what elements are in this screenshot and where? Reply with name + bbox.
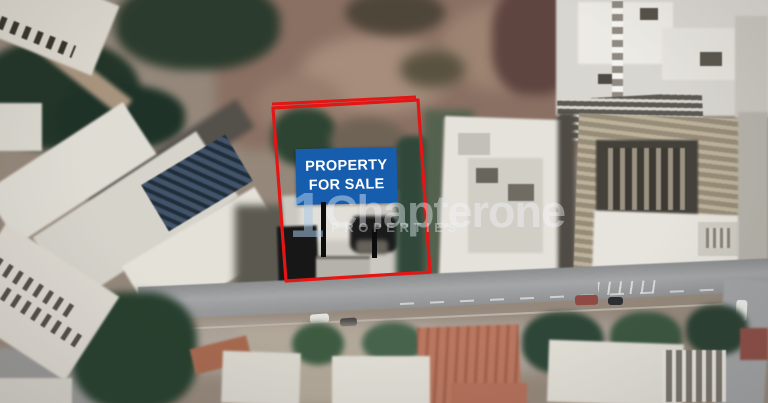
satellite-photo: PROPERTY FOR SALE 1 Chapterone PROPERTIE… xyxy=(0,0,768,403)
for-sale-sign: PROPERTY FOR SALE xyxy=(295,147,397,205)
sign-line-2: FOR SALE xyxy=(309,176,385,194)
sign-line-1: PROPERTY xyxy=(305,157,388,175)
sign-post xyxy=(372,229,377,258)
sign-post xyxy=(321,202,326,257)
